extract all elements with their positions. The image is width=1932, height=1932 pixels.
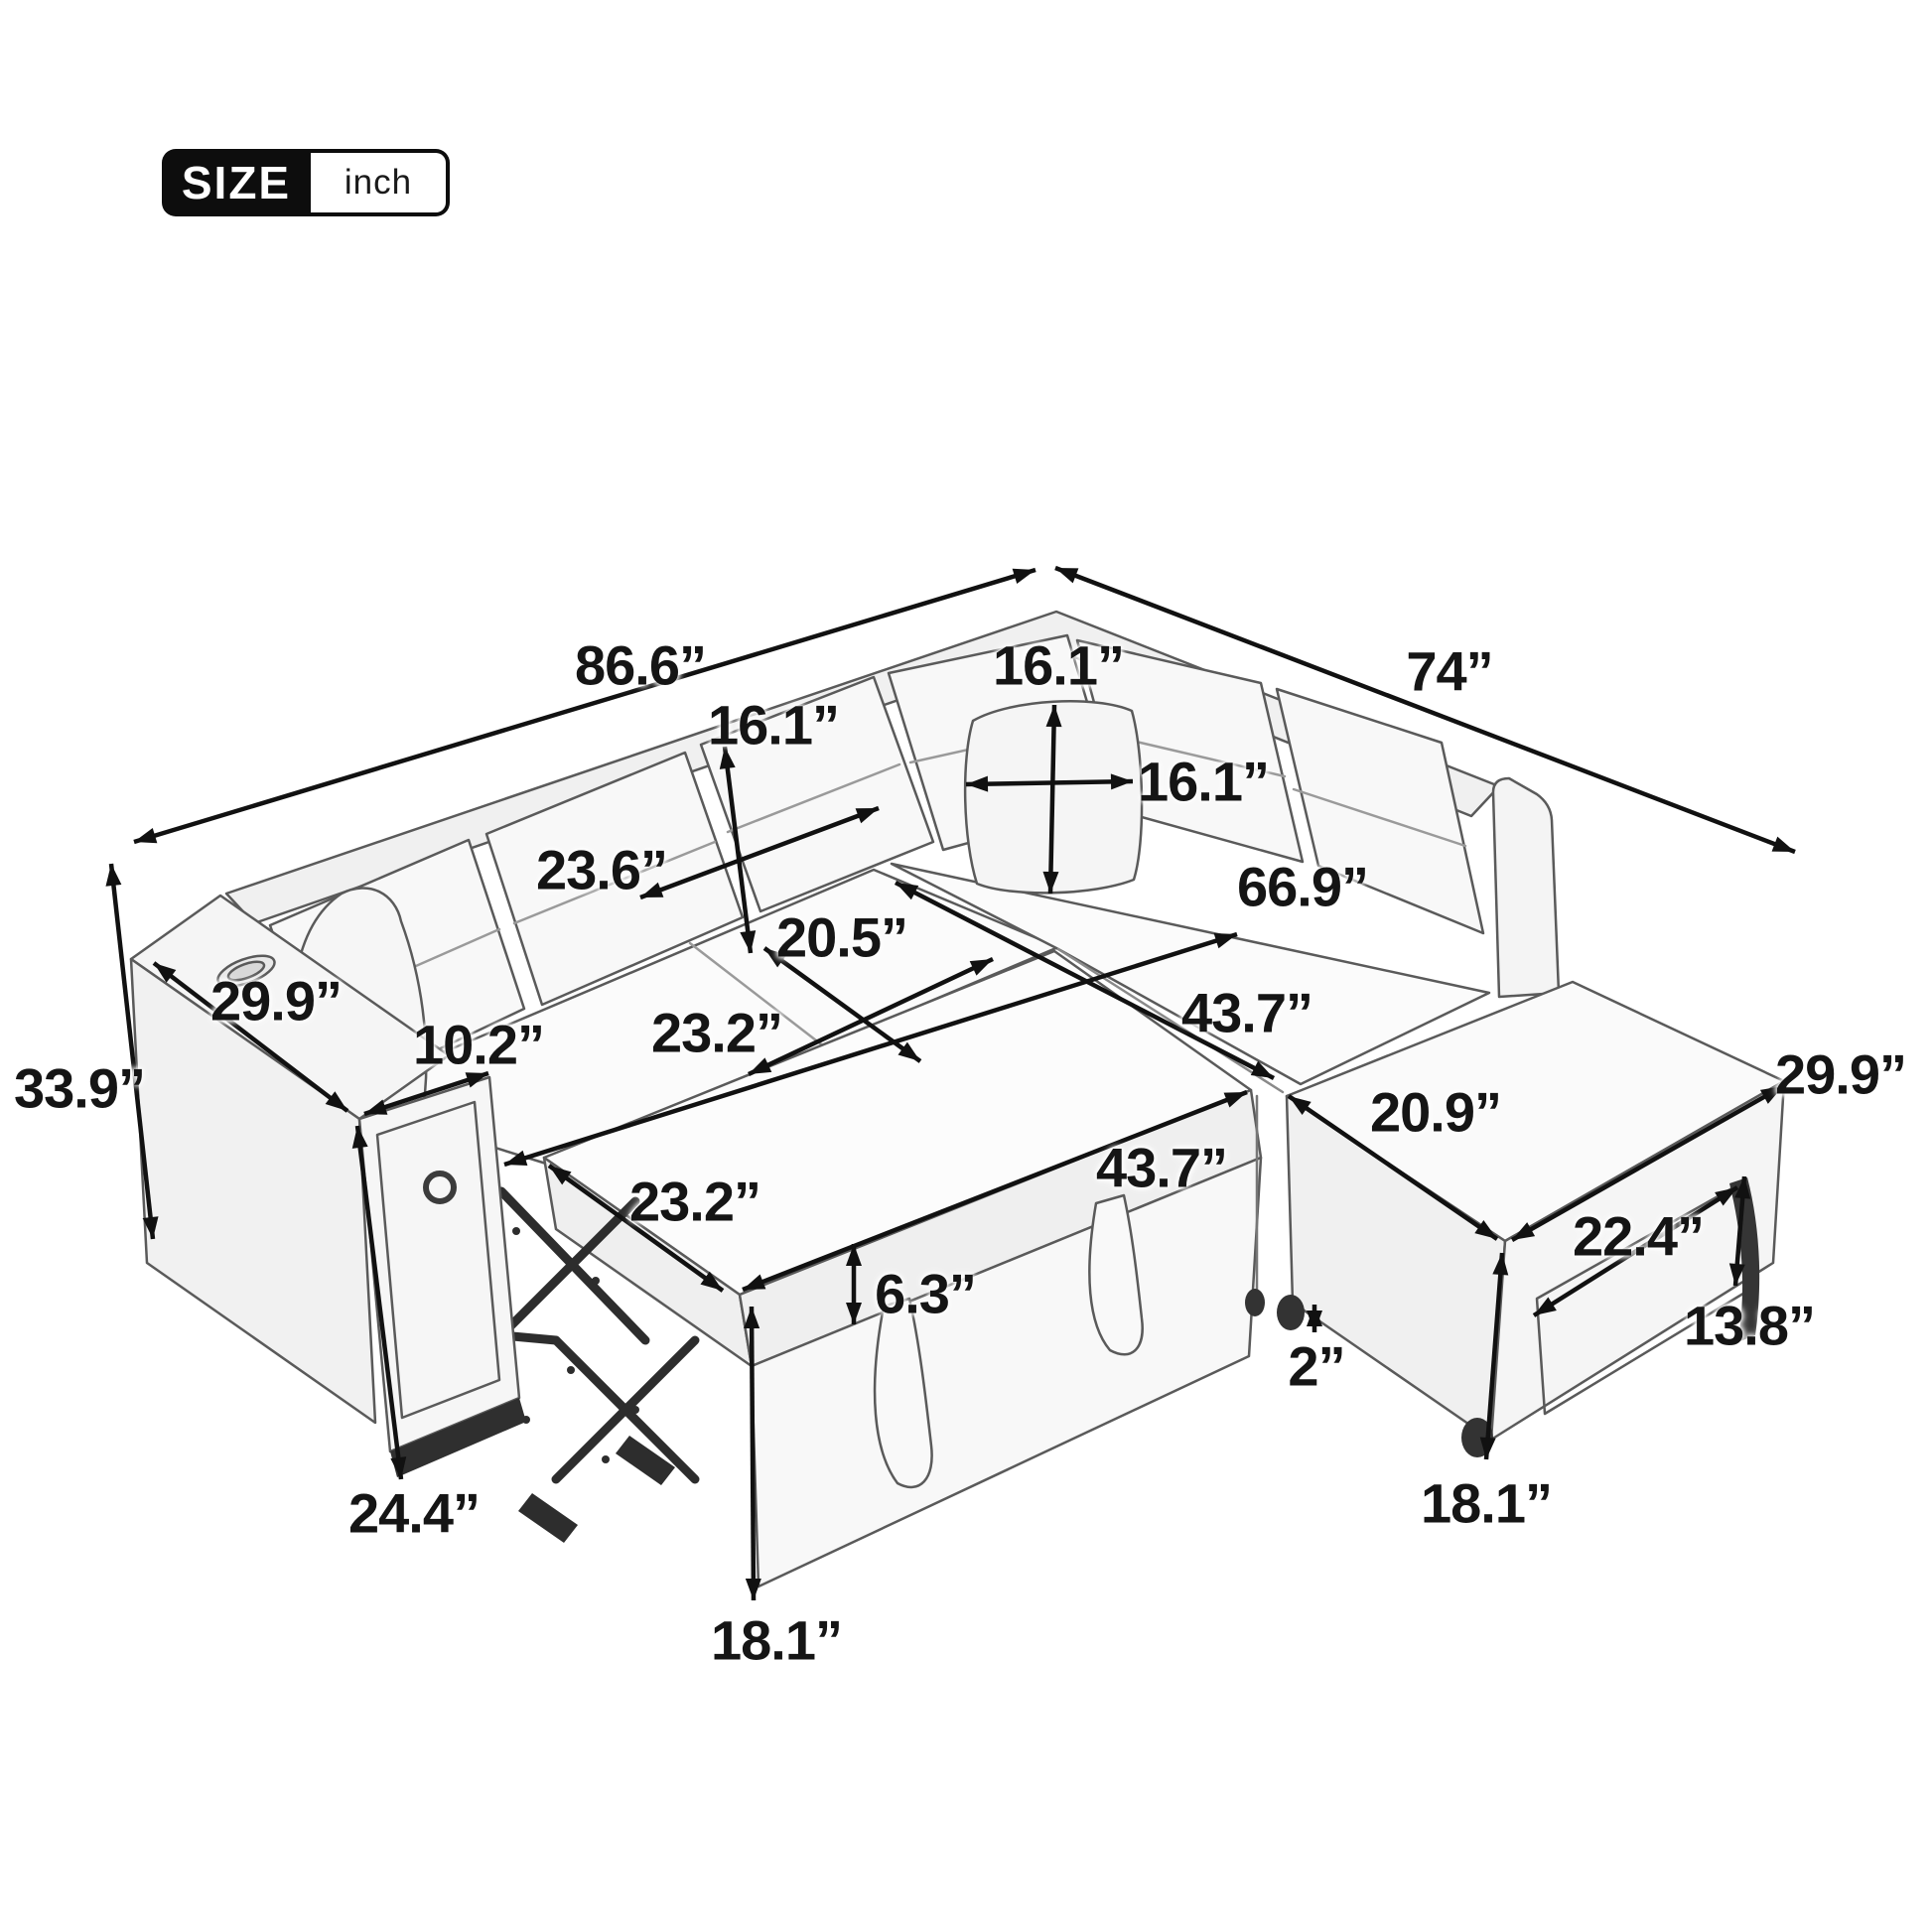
dim-armrest-width: 10.2” [413, 1013, 544, 1077]
dim-mattress-thickness: 6.3” [875, 1262, 976, 1326]
size-badge: SIZE inch [162, 149, 450, 216]
size-badge-label: SIZE [162, 149, 311, 216]
dim-seat-depth: 20.5” [776, 905, 907, 970]
dim-seat-section-length: 43.7” [1181, 981, 1312, 1045]
dim-seat-cushion-width: 23.2” [651, 1001, 782, 1065]
dim-ottoman-top-depth: 20.9” [1370, 1080, 1501, 1145]
dim-ottoman-top-width: 29.9” [1775, 1042, 1906, 1107]
sofa-diagram-canvas [0, 0, 1932, 1932]
ottoman-foot [1277, 1295, 1305, 1330]
dim-side-drawer-width: 22.4” [1573, 1204, 1704, 1269]
dim-side-drawer-height: 13.8” [1684, 1294, 1815, 1358]
sofa-illustration [131, 612, 1784, 1587]
dim-back-width: 86.6” [575, 633, 706, 698]
dim-bed-height: 18.1” [711, 1608, 842, 1673]
dim-right-side-width: 74” [1406, 639, 1492, 704]
dim-armrest-front-height: 24.4” [348, 1481, 480, 1546]
dim-back-cushion-width: 23.6” [536, 838, 667, 902]
dim-ottoman-height: 18.1” [1421, 1471, 1552, 1536]
dim-sleeper-diagonal-length: 66.9” [1237, 855, 1368, 919]
diagram-stage: SIZE inch [0, 0, 1932, 1932]
dim-pullout-bed-width: 23.2” [629, 1170, 760, 1234]
dim-back-cushion-height: 16.1” [708, 693, 839, 758]
right-armrest [1493, 778, 1559, 997]
dim-armrest-top-length: 29.9” [210, 969, 342, 1034]
dim-pullout-bed-length: 43.7” [1096, 1136, 1227, 1200]
dim-leg-height: 2” [1288, 1334, 1344, 1399]
dim-overall-height: 33.9” [14, 1056, 145, 1121]
dim-pillow-height: 16.1” [993, 633, 1124, 698]
size-badge-unit: inch [311, 149, 450, 216]
dim-pillow-width: 16.1” [1138, 750, 1269, 814]
